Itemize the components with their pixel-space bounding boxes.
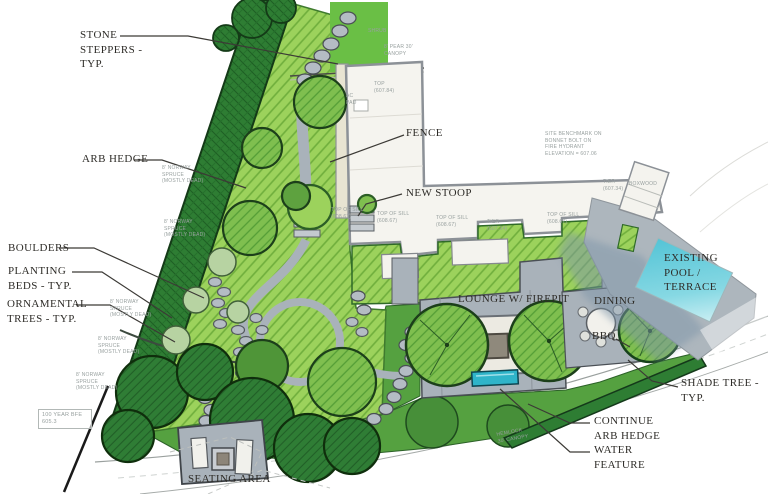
note-norway-spruce: 8' NORWAY SPRUCE (MOSTLY DEAD) <box>98 336 142 356</box>
label-new-stoop: NEW STOOP <box>406 186 472 201</box>
note-pear: 8' PEAR 30' CANOPY <box>384 44 414 57</box>
note-ac-pad: AC PAD <box>346 93 364 106</box>
note-shrub: SHRUB <box>368 28 387 35</box>
label-seating-area: SEATING AREA <box>188 472 271 487</box>
label-fence: FENCE <box>406 126 443 141</box>
lounge-chair <box>191 437 208 468</box>
landscape-site-plan: STONE STEPPERS - TYP. ARB HEDGE BOULDERS… <box>0 0 768 494</box>
note-tier: TIER (607.34) <box>487 219 513 232</box>
note-top-of-sill: TOP OF SILL (608.67) <box>436 215 470 228</box>
label-arb-hedge: ARB HEDGE <box>82 152 148 167</box>
note-top-of-sill: TOP OF SILL (608.67) <box>331 207 365 220</box>
note-top-of-sill: TOP OF SILL (608.67) <box>377 211 411 224</box>
note-norway-spruce: 8' NORWAY SPRUCE (MOSTLY DEAD) <box>162 165 206 185</box>
lounge-chair <box>235 440 253 475</box>
label-dining: DINING <box>594 294 636 309</box>
label-planting-beds: PLANTING BEDS - TYP. <box>8 264 92 293</box>
note-norway-spruce: 8' NORWAY SPRUCE (MOSTLY DEAD) <box>164 219 208 239</box>
note-100yr-bfe: 100 YEAR BFE 605.3 <box>38 409 92 429</box>
label-existing-pool: EXISTING POOL / TERRACE <box>664 251 730 295</box>
label-stone-steppers: STONE STEPPERS - TYP. <box>80 28 152 72</box>
water-feature-basin <box>472 370 519 386</box>
label-bbq: BBQ <box>592 329 616 344</box>
label-lounge-firepit: LOUNGE W/ FIREPIT <box>458 292 569 307</box>
label-water-feature: WATER FEATURE <box>594 443 664 472</box>
note-norway-spruce: 8' NORWAY SPRUCE (MOSTLY DEAD) <box>76 372 120 392</box>
note-top-of-sill: TOP OF SILL (608.67) <box>547 212 581 225</box>
label-shade-tree: SHADE TREE - TYP. <box>681 376 768 405</box>
note-tier: TIER (607.34) <box>603 179 629 192</box>
note-norway-spruce: 8' NORWAY SPRUCE (MOSTLY DEAD) <box>110 299 154 319</box>
label-boulders: BOULDERS <box>8 241 69 256</box>
label-continue-arb-hedge: CONTINUE ARB HEDGE <box>594 414 674 443</box>
note-site-benchmark: SITE BENCHMARK ON BONNET BOLT ON FIRE HY… <box>545 131 605 157</box>
label-ornamental-trees: ORNAMENTAL TREES - TYP. <box>7 297 105 326</box>
note-top: TOP (607.84) <box>374 81 400 94</box>
note-boxwood: BOXWOOD <box>629 181 657 188</box>
